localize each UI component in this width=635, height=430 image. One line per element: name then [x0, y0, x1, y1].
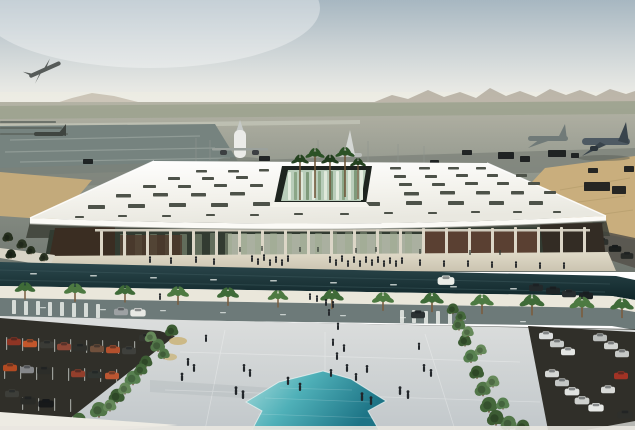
ground-equipment: [588, 168, 598, 173]
skylight: [143, 185, 156, 188]
skylight: [206, 214, 215, 216]
lane-dash: [280, 314, 286, 315]
skylight: [511, 191, 524, 195]
person: [370, 396, 373, 405]
courtyard-glass-box: [281, 170, 366, 201]
person: [263, 254, 265, 261]
skylight: [516, 174, 527, 177]
crosswalk-stripe: [72, 303, 76, 317]
person: [299, 247, 301, 252]
crosswalk-stripe: [400, 310, 404, 323]
skylight: [116, 194, 131, 198]
person: [395, 260, 397, 267]
lane-dash: [150, 277, 157, 279]
skylight: [162, 215, 171, 217]
parking-line: [54, 398, 55, 411]
crosswalk-stripe: [12, 300, 16, 314]
person: [399, 386, 402, 395]
parking-line: [38, 338, 39, 351]
person: [347, 260, 349, 267]
person: [317, 247, 319, 252]
person: [170, 257, 172, 264]
person: [335, 259, 337, 266]
person: [149, 256, 151, 263]
ground-equipment: [584, 182, 610, 191]
skylight: [425, 175, 437, 178]
person: [251, 255, 253, 262]
person: [430, 369, 433, 377]
skylight: [169, 203, 186, 207]
skylight: [236, 176, 248, 179]
skylight: [471, 211, 480, 213]
skylight: [440, 191, 455, 195]
courtyard-glass-panel: [354, 170, 357, 200]
courtyard-glass-panel: [324, 171, 327, 200]
parking-line: [70, 399, 71, 412]
person: [389, 257, 391, 264]
airport-rendering-image: [0, 0, 635, 430]
courtyard-glass-panel: [360, 170, 363, 200]
airport-rendering-figure: [0, 0, 635, 430]
parking-line: [54, 339, 55, 352]
courtyard-glass-panel: [294, 172, 297, 200]
parking-line: [68, 368, 69, 381]
person: [181, 373, 184, 381]
skylight: [432, 183, 445, 186]
skylight: [544, 191, 556, 194]
person: [407, 390, 410, 399]
parking-line: [36, 367, 37, 380]
ground-equipment: [612, 186, 626, 194]
person: [281, 259, 283, 266]
person: [249, 369, 252, 377]
ground-equipment: [498, 152, 514, 159]
skylight: [253, 202, 270, 206]
person: [269, 259, 271, 266]
person: [193, 364, 196, 372]
skylight: [250, 214, 259, 216]
person: [242, 390, 245, 399]
lane-dash: [40, 307, 46, 308]
person: [328, 309, 330, 316]
person: [261, 246, 263, 251]
courtyard-glass-panel: [336, 171, 339, 200]
person: [359, 260, 361, 267]
skylight: [513, 211, 522, 213]
person: [443, 260, 445, 267]
person: [299, 383, 302, 391]
skylight: [456, 174, 468, 177]
skylight: [259, 169, 269, 172]
ground-equipment: [624, 166, 634, 172]
courtyard-glass-panel: [288, 172, 291, 200]
crosswalk-stripe: [60, 302, 64, 316]
skylight: [404, 192, 419, 196]
skylight: [390, 167, 401, 170]
courtyard-glass-panel: [318, 171, 321, 200]
courtyard-sill: [270, 202, 370, 207]
ground-equipment: [548, 150, 566, 157]
person: [341, 255, 343, 262]
skylight: [228, 170, 239, 173]
lane-dash: [100, 309, 106, 310]
ground-equipment: [571, 153, 579, 158]
lane-dash: [330, 282, 337, 284]
skylight: [211, 203, 228, 207]
skylight: [448, 167, 459, 170]
skylight: [384, 212, 393, 214]
ground-equipment: [462, 150, 472, 155]
lane-dash: [510, 288, 517, 290]
lane-dash: [210, 279, 217, 281]
engine-right: [252, 150, 259, 155]
skylight: [476, 167, 486, 170]
lane-dash: [270, 280, 277, 282]
skylight: [250, 184, 263, 187]
person: [418, 343, 420, 350]
person: [330, 369, 333, 377]
person: [213, 258, 215, 265]
person: [361, 392, 364, 401]
person: [205, 335, 207, 342]
ground-equipment: [259, 156, 270, 161]
skylight: [476, 191, 490, 195]
crosswalk-stripe: [48, 302, 52, 316]
person: [343, 344, 346, 352]
ground-equipment: [520, 156, 530, 162]
courtyard-glass-panel: [306, 172, 309, 200]
person: [419, 249, 421, 254]
skylight: [465, 182, 478, 185]
person: [419, 259, 421, 266]
skylight: [128, 204, 145, 208]
skylight: [487, 174, 498, 177]
skylight: [230, 192, 245, 196]
skylight: [168, 177, 180, 180]
skylight: [214, 184, 227, 187]
person: [337, 323, 339, 330]
person: [329, 256, 331, 263]
person: [332, 339, 334, 346]
person: [287, 377, 290, 385]
person: [275, 256, 277, 263]
crosswalk-stripe: [24, 301, 28, 315]
skylight: [394, 175, 406, 178]
lane-dash: [160, 310, 166, 311]
person: [375, 247, 377, 252]
lane-dash: [450, 286, 457, 288]
skylight: [553, 211, 561, 213]
person: [353, 256, 355, 263]
person: [336, 352, 339, 360]
skylight: [340, 213, 349, 215]
lane-dash: [390, 284, 397, 286]
skylight: [419, 167, 430, 170]
person: [491, 261, 493, 268]
person: [346, 364, 349, 372]
lane-dash: [220, 312, 226, 313]
right-large-shadow: [578, 155, 630, 161]
lane-dash: [340, 315, 346, 316]
skylight: [529, 201, 543, 205]
parking-line: [52, 367, 53, 380]
lane-dash: [90, 275, 97, 277]
person: [467, 260, 469, 267]
person: [159, 293, 161, 300]
lane-dash: [520, 321, 526, 322]
skylight: [399, 183, 412, 186]
skylight: [528, 182, 540, 185]
person: [243, 364, 246, 372]
person: [309, 293, 311, 300]
person: [377, 256, 379, 263]
airfield-fence-row: [0, 127, 62, 129]
person: [332, 301, 334, 308]
courtyard-glass-panel: [348, 170, 351, 200]
person: [257, 258, 259, 265]
skylight: [448, 201, 464, 205]
person: [355, 373, 358, 381]
skylight: [118, 215, 127, 217]
person: [383, 260, 385, 267]
skylight: [153, 193, 168, 197]
skylight: [191, 193, 206, 197]
skylight: [406, 201, 422, 205]
person: [515, 261, 517, 268]
distant-plane-wing: [38, 134, 54, 136]
person: [539, 262, 541, 269]
skylight: [75, 216, 84, 218]
skylight: [428, 212, 437, 214]
skylight: [196, 170, 207, 173]
right-large-engine: [590, 146, 598, 151]
person: [366, 365, 369, 373]
person: [371, 259, 373, 266]
skylight: [489, 201, 504, 205]
person: [355, 248, 357, 253]
crosswalk-stripe: [436, 311, 440, 324]
parking-line: [6, 337, 7, 350]
person: [187, 358, 190, 366]
engine-left: [220, 150, 227, 155]
person: [499, 250, 501, 255]
lane-dash: [30, 273, 37, 275]
skylight: [202, 177, 214, 180]
person: [235, 386, 238, 395]
person: [239, 247, 241, 252]
skylight: [294, 213, 303, 215]
person: [423, 364, 426, 372]
person: [287, 255, 289, 262]
skylight: [497, 182, 509, 185]
person: [469, 250, 471, 255]
wings: [212, 148, 268, 151]
person: [325, 299, 327, 306]
airfield-fence-row: [0, 121, 56, 123]
person: [401, 257, 403, 264]
ground-equipment: [83, 159, 93, 164]
crosswalk-stripe: [96, 304, 100, 318]
crosswalk-stripe: [36, 301, 40, 315]
person: [195, 256, 197, 263]
person: [365, 256, 367, 263]
person: [316, 295, 318, 302]
skylight: [178, 185, 191, 188]
person: [563, 262, 565, 269]
skylight: [88, 205, 105, 209]
crosswalk-stripe: [84, 303, 88, 317]
sand-patch-left: [169, 337, 187, 345]
fuselage: [234, 130, 246, 158]
bottom-strip: [0, 426, 635, 430]
